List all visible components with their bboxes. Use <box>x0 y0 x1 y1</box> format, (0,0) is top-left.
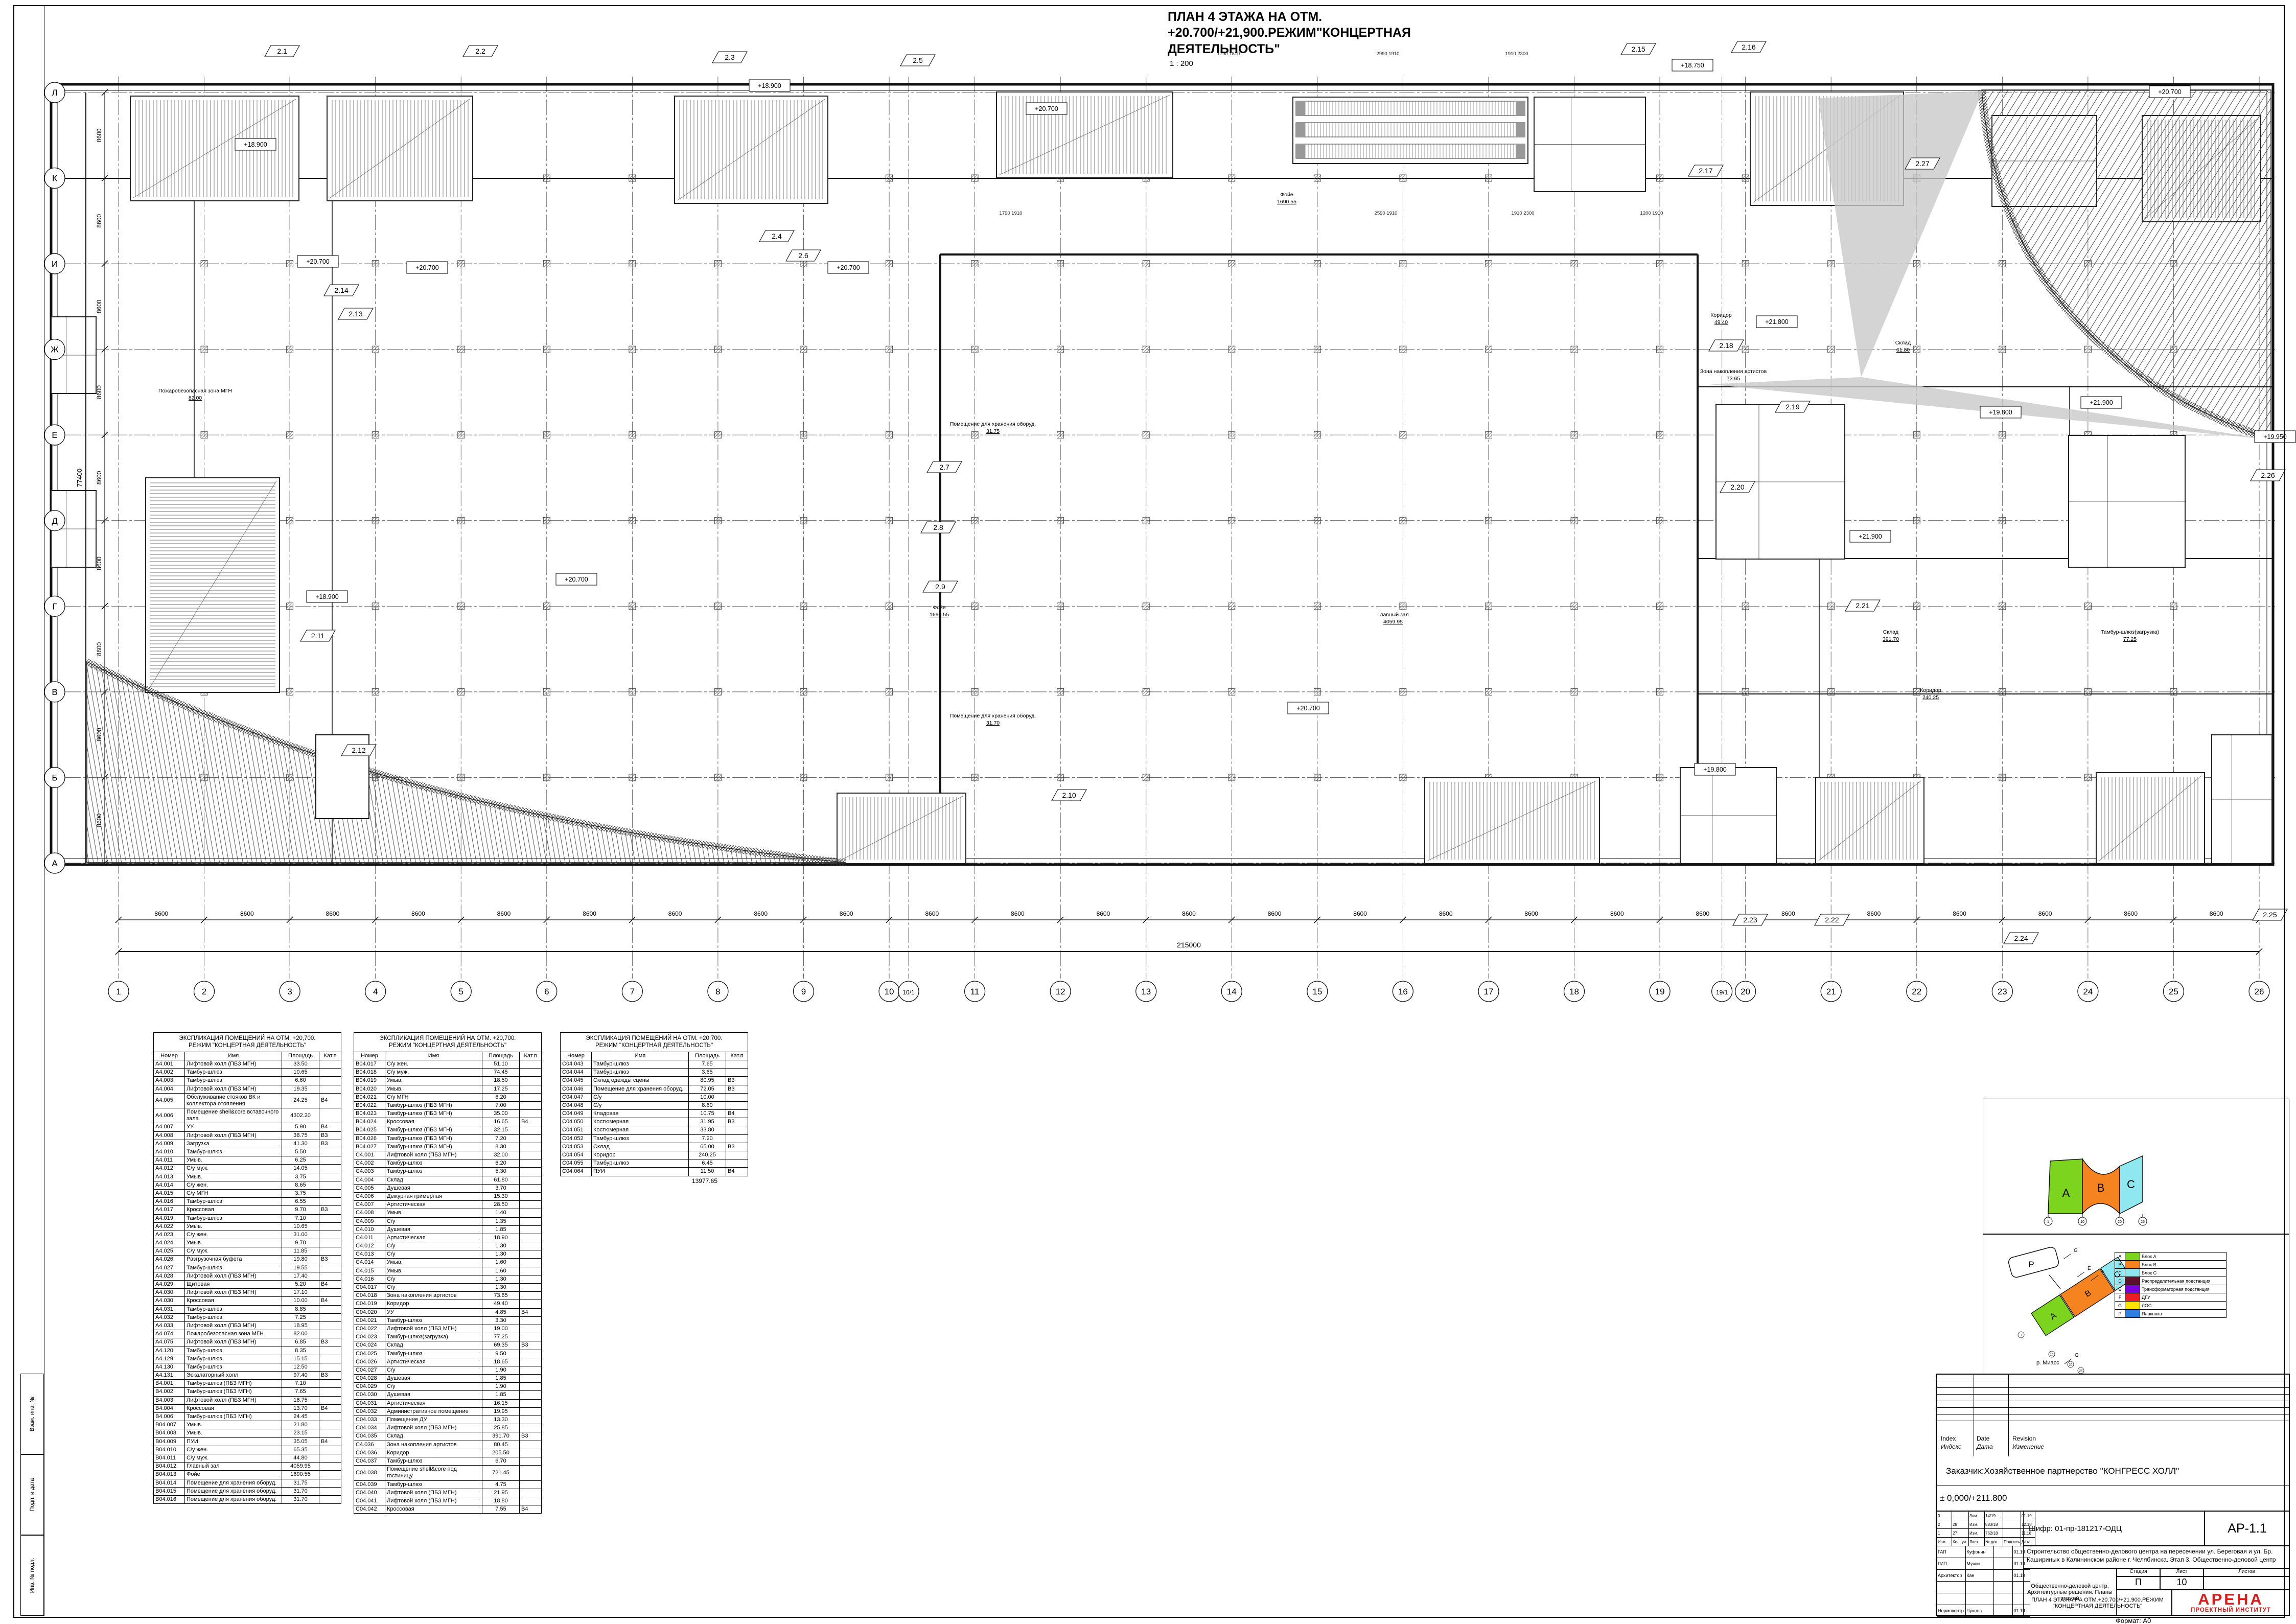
table-row: С04.047С/у10.00 <box>561 1093 748 1101</box>
table-row: С04.028Душевая1.85 <box>354 1375 542 1383</box>
svg-text:E: E <box>2088 1266 2091 1271</box>
index-empty-row <box>1937 1401 2290 1408</box>
plan-title: ПЛАН 4 ЭТАЖА НА ОТМ. +20.700/+21,900.РЕЖ… <box>1168 9 1536 69</box>
table-row: А4.024Умыв.9.70 <box>154 1239 341 1247</box>
svg-text:26: 26 <box>2141 1220 2145 1224</box>
legend-swatch <box>2125 1277 2140 1285</box>
index-empty-row <box>1937 1408 2290 1414</box>
table-row: С04.030Душевая1.85 <box>354 1391 542 1399</box>
table-row: С04.046Помещение для хранения оборуд.72.… <box>561 1085 748 1093</box>
table-row: А4.131Эскалаторный холл97.40В3 <box>154 1372 341 1380</box>
svg-text:C: C <box>2127 1178 2135 1191</box>
table-header-row: НомерИмяПлощадьКат.п <box>561 1052 748 1060</box>
table-row: С4.006Дежурная гримерная15.30 <box>354 1192 542 1200</box>
legend-swatch <box>2125 1261 2140 1269</box>
legend-swatch <box>2125 1252 2140 1261</box>
table-row: С04.021Тамбур-шлюз3.30 <box>354 1316 542 1325</box>
legend-swatch <box>2125 1310 2140 1318</box>
svg-text:26: 26 <box>2079 1370 2083 1373</box>
table-row: С04.020УУ4.85В4 <box>354 1308 542 1316</box>
table-row: С04.025Тамбур-шлюз9.50 <box>354 1350 542 1358</box>
table-row: А4.030Кроссовая10.00В4 <box>154 1297 341 1305</box>
table-row: А4.019Тамбур-шлюз7.10 <box>154 1214 341 1222</box>
table-row: С04.050Костюмерная31.95В3 <box>561 1118 748 1126</box>
stage-table: СтадияПЛист10Листов <box>2117 1568 2290 1590</box>
index-empty-row <box>1937 1381 2290 1388</box>
table-row: А4.016Тамбур-шлюз6.55 <box>154 1198 341 1206</box>
legend-row: GЛОС <box>2115 1302 2227 1310</box>
table-row: С4.011Артистическая18.90 <box>354 1234 542 1242</box>
level-mark-row: ± 0,000/+211.800 <box>1937 1486 2290 1511</box>
plan-title-line: +20.700/+21,900.РЕЖИМ"КОНЦЕРТНАЯ <box>1168 25 1536 41</box>
table-row: В04.018С/у муж.74.45 <box>354 1069 542 1077</box>
svg-text:10: 10 <box>2080 1220 2084 1224</box>
table-row: С04.049Кладовая10.75В4 <box>561 1110 748 1118</box>
table-row: В4.006Тамбур-шлюз (ПБЗ МГН)24.45 <box>154 1413 341 1421</box>
table-row: А4.029Щитовая5.20В4 <box>154 1281 341 1289</box>
svg-text:F: F <box>2101 1269 2104 1275</box>
index-col-divider <box>2008 1375 2009 1456</box>
plan-title-line: ПЛАН 4 ЭТАЖА НА ОТМ. <box>1168 9 1536 25</box>
svg-text:20: 20 <box>2069 1364 2073 1367</box>
table-row: А4.031Тамбур-шлюз8.85 <box>154 1305 341 1313</box>
table-row: В04.011С/у муж.44.80 <box>154 1454 341 1462</box>
table-row: В04.020Умыв.17.25 <box>354 1085 542 1093</box>
table-row: С4.010Душевая1.85 <box>354 1225 542 1234</box>
table-row: С04.054Коридор240.25 <box>561 1151 748 1159</box>
table-row: А4.008Лифтовой холл (ПБЗ МГН)38.75В3 <box>154 1131 341 1140</box>
index-empty-row <box>1937 1375 2290 1381</box>
table-row: С04.039Тамбур-шлюз4.75 <box>354 1480 542 1489</box>
stage-header-cell: Листов <box>2204 1568 2290 1576</box>
legend-row: EТрансформаторная подстанция <box>2115 1285 2227 1293</box>
svg-text:A: A <box>2062 1187 2070 1199</box>
table-row: В04.024Кроссовая16.65В4 <box>354 1118 542 1126</box>
table-row: С4.036Зона накопления артистов80.45 <box>354 1441 542 1449</box>
stage-value-cell: П <box>2117 1576 2160 1590</box>
signature-row: АрхитекторКан01.19 <box>1937 1570 2030 1582</box>
table-row: В04.016Помещение для хранения оборуд.31.… <box>154 1495 341 1503</box>
revision-row: 3-Зам.14/1901.19 <box>1937 1512 2035 1520</box>
keyplan-graphic: ABC1102026ABCРр. МиассGEFG1102026 <box>1983 1099 2289 1375</box>
index-empty-row <box>1937 1388 2290 1395</box>
table-row: С04.026Артистическая18.65 <box>354 1358 542 1366</box>
revision-table: 3-Зам.14/1901.19228Изм.883/1812.18127Изм… <box>1937 1511 2035 1546</box>
signature-row: Нормоконтр.Чуклов01.19 <box>1937 1605 2030 1617</box>
index-header: IndexИндекс <box>1941 1435 1961 1451</box>
table-row: С04.034Лифтовой холл (ПБЗ МГН)25.85 <box>354 1424 542 1432</box>
key-plan: ABC1102026ABCРр. МиассGEFG1102026 AБлок … <box>1983 1099 2290 1375</box>
table-row: С04.041Лифтовой холл (ПБЗ МГН)18.80 <box>354 1497 542 1505</box>
table-row: С04.051Костюмерная33.80 <box>561 1126 748 1134</box>
cipher-cell: Шифр: 01-пр-181217-ОДЦ <box>2023 1511 2205 1546</box>
index-header: RevisionИзменение <box>2012 1435 2044 1451</box>
legend-swatch <box>2125 1269 2140 1277</box>
project-description: Строительство общественно-делового центр… <box>2023 1546 2290 1568</box>
title-block: IndexИндексDateДатаRevisionИзменение Зак… <box>1936 1374 2290 1616</box>
table-row: С04.023Тамбур-шлюз(загрузка)77.25 <box>354 1333 542 1341</box>
table-row: В04.017С/у жен.51.10 <box>354 1060 542 1068</box>
table-row: А4.007УУ5.90В4 <box>154 1123 341 1131</box>
table-row: С04.052Тамбур-шлюз7.20 <box>561 1134 748 1143</box>
frame-stamp-2: Подп. и дата <box>20 1454 44 1535</box>
table-row: А4.026Разгрузочная буфета19.80В3 <box>154 1256 341 1264</box>
format-label: Формат: А0 <box>2116 1617 2151 1624</box>
table-row: С4.003Тамбур-шлюз5.30 <box>354 1168 542 1176</box>
svg-text:Р: Р <box>2028 1260 2034 1269</box>
revision-row: 127Изм.762/1811.18 <box>1937 1529 2035 1538</box>
plan-scale: 1 : 200 <box>1168 59 1536 69</box>
signature-row: ГАПКуфонин01.19 <box>1937 1546 2030 1558</box>
table-row: В04.014Помещение для хранения оборуд.31.… <box>154 1479 341 1487</box>
svg-text:р. Миасс: р. Миасс <box>2036 1360 2059 1366</box>
table-row: С4.002Тамбур-шлюз6.20 <box>354 1159 542 1168</box>
table-row: А4.014С/у жен.8.65 <box>154 1181 341 1189</box>
table-row: В4.003Лифтовой холл (ПБЗ МГН)16.75 <box>154 1396 341 1404</box>
legend-swatch <box>2125 1293 2140 1302</box>
table-row: С04.033Помещение ДУ13.30 <box>354 1416 542 1424</box>
table-row: С04.032Административное помещение19.95 <box>354 1407 542 1416</box>
index-col-divider <box>1974 1375 1974 1456</box>
table-row: С04.017С/у1.30 <box>354 1284 542 1292</box>
table-row: В4.002Тамбур-шлюз (ПБЗ МГН)7.65 <box>154 1388 341 1396</box>
table-row: А4.074Пожаробезопасная зона МГН82.00 <box>154 1330 341 1338</box>
table-row: В04.019Умыв.18.50 <box>354 1077 542 1085</box>
table-row: С04.029С/у1.90 <box>354 1383 542 1391</box>
frame-stamp-1: Взам. инв. № <box>20 1374 44 1454</box>
legend-row: AБлок А <box>2115 1252 2227 1261</box>
logo-line1: АРЕНА <box>2172 1591 2289 1607</box>
room-schedule-table-2: ЭКСПЛИКАЦИЯ ПОМЕЩЕНИЙ НА ОТМ. +20,700.РЕ… <box>354 1032 542 1514</box>
table-row: С04.024Склад69.35В3 <box>354 1341 542 1350</box>
company-logo: АРЕНА ПРОЕКТНЫЙ ИНСТИТУТ <box>2172 1590 2290 1616</box>
table-row: А4.012С/у муж.14.05 <box>154 1165 341 1173</box>
table-row: С4.009С/у1.35 <box>354 1217 542 1225</box>
plan-title-line: ДЕЯТЕЛЬНОСТЬ" <box>1168 41 1536 57</box>
binding-margin-line <box>44 5 44 1616</box>
legend-row: PПарковка <box>2115 1310 2227 1318</box>
table-row: А4.010Тамбур-шлюз5.50 <box>154 1148 341 1156</box>
drawing-sheet: 8600860086008600860086008600860086008600… <box>0 0 2296 1624</box>
table-row: А4.001Лифтовой холл (ПБЗ МГН)33.50 <box>154 1060 341 1068</box>
table-row: А4.075Лифтовой холл (ПБЗ МГН)6.85В3 <box>154 1338 341 1347</box>
table-row: С4.016С/у1.30 <box>354 1275 542 1283</box>
table-row: С04.022Лифтовой холл (ПБЗ МГН)19.00 <box>354 1325 542 1333</box>
svg-text:G: G <box>2074 1248 2078 1254</box>
table-row: С04.053Склад65.00В3 <box>561 1143 748 1151</box>
table-row: С04.048С/у8.60 <box>561 1101 748 1109</box>
table-row: С04.038Помещение shell&core под гостиниц… <box>354 1466 542 1480</box>
table-row: С04.035Склад391.70В3 <box>354 1432 542 1441</box>
revision-row: 228Изм.883/1812.18 <box>1937 1520 2035 1529</box>
table-row: В04.021С/у МГН6.20 <box>354 1093 542 1101</box>
signature-row: ГИПМухин01.19 <box>1937 1558 2030 1570</box>
signature-row <box>1937 1593 2030 1605</box>
table-row: В04.013Фойе1690.55 <box>154 1471 341 1479</box>
stage-value-cell <box>2204 1576 2290 1590</box>
index-header: DateДата <box>1977 1435 1993 1451</box>
table-row: С04.031Артистическая16.15 <box>354 1399 542 1407</box>
table-title: ЭКСПЛИКАЦИЯ ПОМЕЩЕНИЙ НА ОТМ. +20,700.РЕ… <box>354 1032 542 1052</box>
table-row: В04.010С/у жен.65.35 <box>154 1446 341 1454</box>
table-row: В04.026Тамбур-шлюз (ПБЗ МГН)7.20 <box>354 1134 542 1143</box>
table-header-row: НомерИмяПлощадьКат.п <box>354 1052 542 1060</box>
table-row: В04.022Тамбур-шлюз (ПБЗ МГН)7.00 <box>354 1101 542 1109</box>
table-row: С04.027С/у1.90 <box>354 1366 542 1374</box>
sheet-code: АР-1.1 <box>2205 1511 2290 1546</box>
table-row: А4.032Тамбур-шлюз7.25 <box>154 1313 341 1321</box>
table-row: В04.012Главный зал4059.95 <box>154 1463 341 1471</box>
table-row: А4.002Тамбур-шлюз10.65 <box>154 1069 341 1077</box>
stage-value-cell: 10 <box>2160 1576 2204 1590</box>
revision-row: Изм.Кол. учЛист№ док.ПодписьДата <box>1937 1538 2035 1546</box>
table-row: В04.008Умыв.23.15 <box>154 1429 341 1437</box>
table-row: С4.013С/у1.30 <box>354 1250 542 1259</box>
table-row: А4.004Лифтовой холл (ПБЗ МГН)19.35 <box>154 1085 341 1093</box>
table-row: А4.003Тамбур-шлюз6.60 <box>154 1077 341 1085</box>
table-row: С04.044Тамбур-шлюз3.65 <box>561 1069 748 1077</box>
table-row: С4.007Артистическая28.50 <box>354 1201 542 1209</box>
table-row: А4.025С/у муж.11.85 <box>154 1247 341 1256</box>
table-row: С04.019Коридор49.40 <box>354 1300 542 1308</box>
table-row: В04.015Помещение для хранения оборуд.31.… <box>154 1487 341 1495</box>
table-row: В04.025Тамбур-шлюз (ПБЗ МГН)32.15 <box>354 1126 542 1134</box>
table-row: В4.001Тамбур-шлюз (ПБЗ МГН)7.10 <box>154 1380 341 1388</box>
index-empty-row <box>1937 1414 2290 1421</box>
legend-row: FДГУ <box>2115 1293 2227 1302</box>
table-row: С4.005Душевая3.70 <box>354 1184 542 1192</box>
index-empty-row <box>1937 1395 2290 1401</box>
table-row: В4.004Кроссовая13.70В4 <box>154 1404 341 1412</box>
table-row: А4.013Умыв.3.75 <box>154 1173 341 1181</box>
table-row: А4.120Тамбур-шлюз8.35 <box>154 1347 341 1355</box>
table-row: А4.130Тамбур-шлюз12.50 <box>154 1363 341 1371</box>
stage-header-cell: Стадия <box>2117 1568 2160 1576</box>
stage-header-cell: Лист <box>2160 1568 2204 1576</box>
svg-text:1: 1 <box>2047 1220 2049 1224</box>
legend-row: CБлок С <box>2115 1269 2227 1277</box>
table-row: А4.033Лифтовой холл (ПБЗ МГН)18.95 <box>154 1321 341 1330</box>
block-legend: AБлок АBБлок BCБлок СDРаспределительная … <box>2115 1252 2227 1318</box>
table-row: С04.040Лифтовой холл (ПБЗ МГН)21.95 <box>354 1489 542 1497</box>
table-row: С04.055Тамбур-шлюз6.45 <box>561 1159 748 1168</box>
table-row: В04.027Тамбур-шлюз (ПБЗ МГН)8.30 <box>354 1143 542 1151</box>
table-row: А4.129Тамбур-шлюз15.15 <box>154 1355 341 1363</box>
table-row: С04.037Тамбур-шлюз6.70 <box>354 1457 542 1465</box>
table-row: А4.005Обслуживание стояков ВК и коллекто… <box>154 1093 341 1108</box>
table-row: С04.042Кроссовая7.55В4 <box>354 1505 542 1514</box>
table-row: А4.009Загрузка41.30В3 <box>154 1140 341 1148</box>
table-row: А4.015С/у МГН3.75 <box>154 1189 341 1197</box>
legend-row: BБлок B <box>2115 1261 2227 1269</box>
signature-table: ГАПКуфонин01.19ГИПМухин01.19АрхитекторКа… <box>1937 1546 2030 1617</box>
table-title: ЭКСПЛИКАЦИЯ ПОМЕЩЕНИЙ НА ОТМ. +20,700.РЕ… <box>153 1032 341 1052</box>
table-row: С4.004Склад61.80 <box>354 1176 542 1184</box>
table-row: А4.028Лифтовой холл (ПБЗ МГН)17.40 <box>154 1272 341 1280</box>
legend-swatch <box>2125 1302 2140 1310</box>
table-title: ЭКСПЛИКАЦИЯ ПОМЕЩЕНИЙ НА ОТМ. +20,700.РЕ… <box>560 1032 748 1052</box>
table-row: С04.064ПУИ11.50В4 <box>561 1168 748 1176</box>
frame-stamp-label: Взам. инв. № <box>29 1397 35 1431</box>
frame-stamp-3: Инв. № подл. <box>20 1535 44 1616</box>
client-row: Заказчик:Хозяйственное партнерство "КОНГ… <box>1937 1456 2290 1486</box>
table-row: В04.023Тамбур-шлюз (ПБЗ МГН)35.00 <box>354 1110 542 1118</box>
legend-swatch <box>2125 1285 2140 1293</box>
table-row: А4.011Умыв.6.25 <box>154 1156 341 1165</box>
svg-text:G: G <box>2075 1353 2079 1358</box>
table-row: А4.022Умыв.10.65 <box>154 1222 341 1231</box>
table-row: С04.036Коридор205.50 <box>354 1449 542 1457</box>
table-row: А4.017Кроссовая9.70В3 <box>154 1206 341 1214</box>
table-total: 13977.65 <box>560 1177 748 1185</box>
table-row: С4.012С/у1.30 <box>354 1242 542 1250</box>
table-row: С04.018Зона накопления артистов73.65 <box>354 1292 542 1300</box>
svg-text:10: 10 <box>2050 1354 2054 1357</box>
table-row: А4.027Тамбур-шлюз19.55 <box>154 1264 341 1272</box>
table-header-row: НомерИмяПлощадьКат.п <box>154 1052 341 1060</box>
table-row: С04.045Склад одежды сцены80.95В3 <box>561 1077 748 1085</box>
table-row: С04.043Тамбур-шлюз7.65 <box>561 1060 748 1068</box>
table-row: С4.001Лифтовой холл (ПБЗ МГН)32.00 <box>354 1151 542 1159</box>
room-schedule-table-3: ЭКСПЛИКАЦИЯ ПОМЕЩЕНИЙ НА ОТМ. +20,700.РЕ… <box>560 1032 748 1185</box>
table-row: А4.023С/у жен.31.00 <box>154 1231 341 1239</box>
sheet-title-cell: ПЛАН 4 ЭТАЖА НА ОТМ.+20.700/+21.900.РЕЖИ… <box>2023 1590 2172 1616</box>
svg-text:B: B <box>2097 1181 2105 1194</box>
signature-row <box>1937 1582 2030 1593</box>
table-row: В04.009ПУИ35.05В4 <box>154 1437 341 1446</box>
table-row: А4.006Помещение shell&core вставочного з… <box>154 1108 341 1123</box>
frame-stamp-label: Подп. и дата <box>29 1478 35 1512</box>
room-schedule-table-1: ЭКСПЛИКАЦИЯ ПОМЕЩЕНИЙ НА ОТМ. +20,700.РЕ… <box>153 1032 341 1504</box>
svg-text:20: 20 <box>2118 1220 2122 1224</box>
logo-line2: ПРОЕКТНЫЙ ИНСТИТУТ <box>2172 1607 2289 1613</box>
table-row: С4.014Умыв.1.60 <box>354 1259 542 1267</box>
table-row: С4.008Умыв.1.40 <box>354 1209 542 1217</box>
frame-stamp-label: Инв. № подл. <box>29 1558 35 1593</box>
table-row: С4.015Умыв.1.60 <box>354 1267 542 1275</box>
table-row: А4.030Лифтовой холл (ПБЗ МГН)17.10 <box>154 1289 341 1297</box>
table-row: В04.007Умыв.21.80 <box>154 1421 341 1429</box>
legend-row: DРаспределительная подстанция <box>2115 1277 2227 1285</box>
